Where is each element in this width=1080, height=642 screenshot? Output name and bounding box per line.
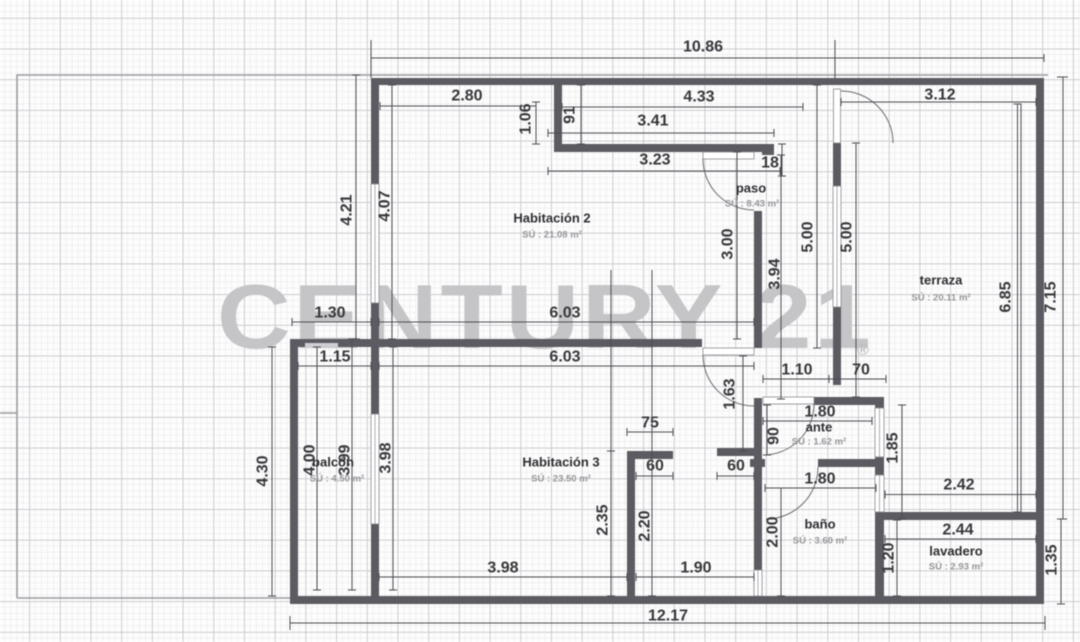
svg-text:1.06: 1.06 xyxy=(518,103,535,134)
svg-text:SÚ : 2.93 m²: SÚ : 2.93 m² xyxy=(929,561,983,573)
svg-text:1.90: 1.90 xyxy=(680,560,711,577)
svg-text:baño: baño xyxy=(804,517,835,532)
svg-text:balcón: balcón xyxy=(312,455,354,470)
svg-text:7.15: 7.15 xyxy=(1043,281,1060,312)
svg-text:terraza: terraza xyxy=(920,273,963,288)
svg-text:SÚ : 21.08 m²: SÚ : 21.08 m² xyxy=(522,229,582,241)
svg-text:Habitación 3: Habitación 3 xyxy=(522,455,599,470)
svg-text:60: 60 xyxy=(727,458,745,475)
svg-text:SÚ : 1.62 m²: SÚ : 1.62 m² xyxy=(792,436,846,448)
svg-text:4.33: 4.33 xyxy=(683,89,714,106)
svg-text:10.86: 10.86 xyxy=(683,39,723,56)
svg-text:90: 90 xyxy=(766,427,783,445)
svg-text:Habitación 2: Habitación 2 xyxy=(513,211,590,226)
svg-text:5.00: 5.00 xyxy=(800,221,817,252)
svg-text:3.98: 3.98 xyxy=(378,442,395,473)
svg-text:5.00: 5.00 xyxy=(839,221,856,252)
svg-text:1.20: 1.20 xyxy=(881,542,898,573)
svg-text:ante: ante xyxy=(806,420,833,435)
svg-text:1.10: 1.10 xyxy=(781,362,812,379)
svg-text:3.23: 3.23 xyxy=(639,152,670,169)
svg-text:SÚ : 8.43 m²: SÚ : 8.43 m² xyxy=(725,198,779,210)
svg-text:12.17: 12.17 xyxy=(648,608,688,625)
svg-text:75: 75 xyxy=(641,415,659,432)
svg-text:6.85: 6.85 xyxy=(998,281,1015,312)
svg-text:2.44: 2.44 xyxy=(942,522,973,539)
svg-text:2.35: 2.35 xyxy=(595,504,612,535)
svg-text:4.07: 4.07 xyxy=(377,190,394,221)
svg-text:3.41: 3.41 xyxy=(637,113,668,130)
svg-text:1.15: 1.15 xyxy=(319,349,350,366)
svg-text:SÚ : 3.60 m²: SÚ : 3.60 m² xyxy=(793,535,847,547)
svg-text:2.42: 2.42 xyxy=(943,477,974,494)
svg-text:3.94: 3.94 xyxy=(767,258,784,289)
svg-text:4.30: 4.30 xyxy=(255,455,272,486)
svg-text:1.80: 1.80 xyxy=(804,471,835,488)
svg-text:6.03: 6.03 xyxy=(549,349,580,366)
svg-text:70: 70 xyxy=(852,362,870,379)
svg-text:60: 60 xyxy=(646,458,664,475)
svg-text:2.20: 2.20 xyxy=(637,510,654,541)
svg-text:2.00: 2.00 xyxy=(765,516,782,547)
svg-text:1.85: 1.85 xyxy=(885,432,902,463)
svg-text:lavadero: lavadero xyxy=(929,544,983,559)
svg-text:1.30: 1.30 xyxy=(314,305,345,322)
svg-text:3.12: 3.12 xyxy=(924,87,955,104)
svg-text:paso: paso xyxy=(736,181,766,196)
svg-text:6.03: 6.03 xyxy=(549,305,580,322)
svg-text:SÚ : 4.50 m²: SÚ : 4.50 m² xyxy=(310,473,364,485)
svg-text:1.35: 1.35 xyxy=(1044,544,1061,575)
svg-text:2.80: 2.80 xyxy=(451,88,482,105)
svg-text:®: ® xyxy=(857,342,869,359)
svg-text:1.63: 1.63 xyxy=(722,378,739,409)
svg-text:4.21: 4.21 xyxy=(339,194,356,225)
svg-text:3.00: 3.00 xyxy=(720,228,737,259)
svg-text:1.80: 1.80 xyxy=(804,404,835,421)
svg-text:SÚ : 23.50 m²: SÚ : 23.50 m² xyxy=(531,473,591,485)
svg-text:3.98: 3.98 xyxy=(487,560,518,577)
svg-text:SÚ : 20.11 m²: SÚ : 20.11 m² xyxy=(911,292,970,304)
svg-text:91: 91 xyxy=(562,106,579,124)
svg-text:18: 18 xyxy=(761,155,779,172)
